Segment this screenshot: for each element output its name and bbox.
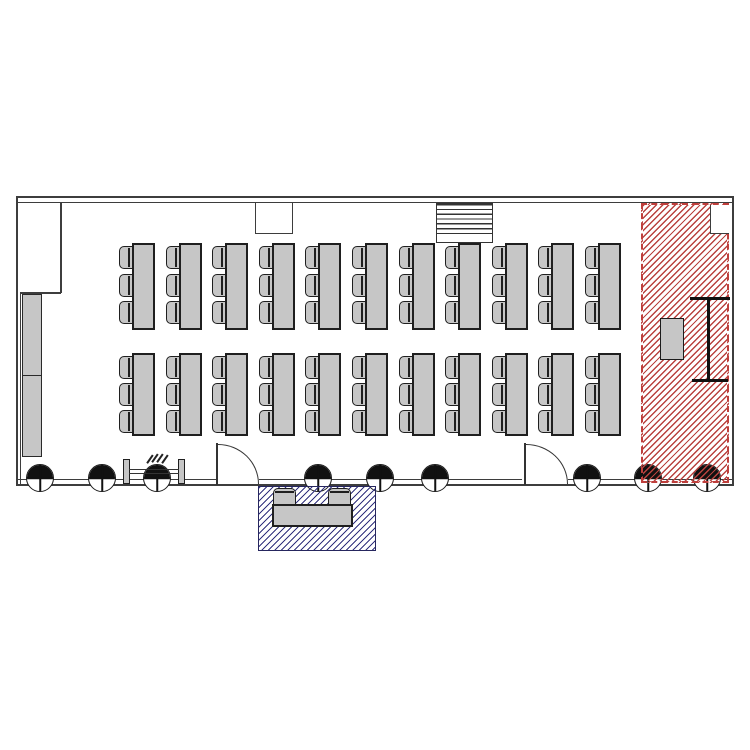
chair (352, 410, 366, 433)
red-area-cabinet (660, 318, 684, 360)
wall-recess (255, 203, 293, 234)
chair-backrest-line (361, 303, 363, 322)
chair-backrest-line (361, 385, 363, 404)
chair (585, 410, 599, 433)
column-axis-horizontal (27, 477, 53, 479)
chair-backrest-line (128, 412, 130, 431)
chair-backrest-line (454, 358, 456, 377)
chair (166, 383, 180, 406)
dining-table (598, 353, 621, 436)
chair (166, 410, 180, 433)
chair (212, 274, 226, 297)
wall-segment (16, 202, 733, 203)
chair-backrest-line (128, 385, 130, 404)
chair (305, 410, 319, 433)
structural-column (421, 464, 449, 492)
dining-table (132, 353, 155, 436)
dining-table (598, 243, 621, 330)
partition-line (707, 297, 710, 381)
dining-table (179, 243, 202, 330)
chair (166, 274, 180, 297)
chair-backrest-line (547, 303, 549, 322)
chair (305, 301, 319, 324)
chair-backrest-line (268, 385, 270, 404)
chair-backrest-line (128, 358, 130, 377)
chair-backrest-line (128, 248, 130, 267)
column-axis-horizontal (367, 477, 393, 479)
chair (352, 246, 366, 269)
chair (259, 383, 273, 406)
chair (492, 410, 506, 433)
chair-backrest-line (454, 412, 456, 431)
floor-plan-canvas (0, 0, 750, 750)
chair-backrest-line (501, 248, 503, 267)
red-area-notch (710, 205, 729, 234)
chair (445, 301, 459, 324)
chair-backrest-line (275, 491, 294, 493)
dining-table (318, 353, 341, 436)
chair-backrest-line (268, 276, 270, 295)
chair-backrest-line (547, 412, 549, 431)
chair (212, 246, 226, 269)
chair-backrest-line (221, 303, 223, 322)
chair (259, 301, 273, 324)
chair (538, 410, 552, 433)
chair (119, 274, 133, 297)
chair (585, 383, 599, 406)
chair (212, 410, 226, 433)
chair (399, 383, 413, 406)
chair (352, 383, 366, 406)
chair (585, 274, 599, 297)
chair (445, 356, 459, 379)
chair-backrest-line (314, 303, 316, 322)
entrance-bench (272, 504, 353, 527)
dining-table (505, 243, 528, 330)
chair-backrest-line (268, 412, 270, 431)
rail-line (129, 469, 179, 470)
chair-backrest-line (594, 303, 596, 322)
chair-backrest-line (221, 385, 223, 404)
dining-table (272, 353, 295, 436)
dining-table (225, 243, 248, 330)
chair (259, 410, 273, 433)
chair-backrest-line (361, 248, 363, 267)
chair-backrest-line (268, 248, 270, 267)
chair (305, 383, 319, 406)
dining-table (365, 353, 388, 436)
chair (212, 356, 226, 379)
chair (445, 274, 459, 297)
dining-table (365, 243, 388, 330)
chair (399, 274, 413, 297)
chair (259, 274, 273, 297)
chair-backrest-line (175, 248, 177, 267)
chair (492, 274, 506, 297)
wall-segment (60, 202, 62, 293)
chair-backrest-line (314, 248, 316, 267)
chair-backrest-line (128, 303, 130, 322)
dining-table (505, 353, 528, 436)
column-axis-horizontal (422, 477, 448, 479)
chair-backrest-line (221, 358, 223, 377)
dining-table (179, 353, 202, 436)
rail-line (129, 473, 179, 474)
chair (585, 356, 599, 379)
dining-table (458, 353, 481, 436)
chair (445, 246, 459, 269)
chair (212, 301, 226, 324)
chair (399, 246, 413, 269)
chair-backrest-line (501, 303, 503, 322)
chair (352, 301, 366, 324)
chair-backrest-line (268, 358, 270, 377)
chair (119, 246, 133, 269)
chair-backrest-line (547, 276, 549, 295)
chair (305, 246, 319, 269)
dining-table (551, 353, 574, 436)
chair (399, 356, 413, 379)
chair-backrest-line (268, 303, 270, 322)
chair (352, 274, 366, 297)
chair-backrest-line (547, 385, 549, 404)
entrance-chair (328, 488, 351, 505)
chair-backrest-line (594, 248, 596, 267)
column-axis-horizontal (144, 477, 170, 479)
chair-backrest-line (501, 385, 503, 404)
dining-table (318, 243, 341, 330)
chair (166, 246, 180, 269)
chair-backrest-line (547, 248, 549, 267)
chair-backrest-line (314, 385, 316, 404)
chair (119, 383, 133, 406)
structural-column (573, 464, 601, 492)
chair-backrest-line (501, 412, 503, 431)
entrance-area-blue (258, 486, 376, 551)
chair (445, 410, 459, 433)
chair (538, 356, 552, 379)
chair-backrest-line (501, 358, 503, 377)
chair (119, 301, 133, 324)
dining-table (551, 243, 574, 330)
column-axis-horizontal (574, 477, 600, 479)
stairs-treads (437, 204, 492, 237)
chair (585, 301, 599, 324)
chair (259, 246, 273, 269)
chair-backrest-line (408, 385, 410, 404)
chair (352, 356, 366, 379)
chair-backrest-line (175, 385, 177, 404)
entrance-chair (273, 488, 296, 505)
chair-backrest-line (361, 412, 363, 431)
structural-column (88, 464, 116, 492)
door-swing-arc (218, 444, 259, 484)
chair-backrest-line (175, 358, 177, 377)
chair (119, 410, 133, 433)
wall-segment (16, 196, 18, 486)
chair (399, 301, 413, 324)
dining-table (225, 353, 248, 436)
chair-backrest-line (594, 412, 596, 431)
chair-backrest-line (454, 276, 456, 295)
hatch-tick (161, 454, 168, 463)
chair (212, 383, 226, 406)
chair-backrest-line (314, 358, 316, 377)
chair-backrest-line (408, 248, 410, 267)
chair-backrest-line (594, 358, 596, 377)
chair (538, 383, 552, 406)
chair-backrest-line (330, 491, 349, 493)
wall-segment (732, 196, 734, 486)
chair (492, 301, 506, 324)
partition-line (692, 379, 728, 382)
chair-backrest-line (594, 385, 596, 404)
chair-backrest-line (501, 276, 503, 295)
chair (166, 356, 180, 379)
chair (492, 383, 506, 406)
floor-plan (0, 0, 750, 750)
chair-backrest-line (221, 248, 223, 267)
dining-table (458, 243, 481, 330)
rail-post (178, 459, 185, 484)
chair-backrest-line (221, 276, 223, 295)
stairs (436, 203, 493, 243)
column-axis-horizontal (89, 477, 115, 479)
chair-backrest-line (314, 276, 316, 295)
chair-backrest-line (175, 303, 177, 322)
wall-segment (20, 292, 21, 484)
chair-backrest-line (454, 385, 456, 404)
chair (305, 274, 319, 297)
chair-backrest-line (408, 276, 410, 295)
chair (305, 356, 319, 379)
chair-backrest-line (361, 358, 363, 377)
chair-backrest-line (361, 276, 363, 295)
column-axis-horizontal (305, 477, 331, 479)
chair-backrest-line (175, 276, 177, 295)
chair (445, 383, 459, 406)
wall-cabinet (22, 294, 42, 377)
chair-backrest-line (314, 412, 316, 431)
structural-column (26, 464, 54, 492)
chair (259, 356, 273, 379)
wall-segment (16, 196, 734, 198)
rail-post (123, 459, 130, 484)
chair (538, 274, 552, 297)
wall-cabinet (22, 375, 42, 457)
chair-backrest-line (454, 303, 456, 322)
chair (399, 410, 413, 433)
dining-table (412, 243, 435, 330)
chair-backrest-line (221, 412, 223, 431)
chair-backrest-line (175, 412, 177, 431)
chair (538, 301, 552, 324)
chair (492, 246, 506, 269)
chair-backrest-line (128, 276, 130, 295)
chair-backrest-line (408, 303, 410, 322)
chair-backrest-line (408, 412, 410, 431)
partition-line (690, 297, 730, 300)
chair-backrest-line (594, 276, 596, 295)
chair (166, 301, 180, 324)
dining-table (272, 243, 295, 330)
chair-backrest-line (454, 248, 456, 267)
dining-table (412, 353, 435, 436)
chair (585, 246, 599, 269)
dining-table (132, 243, 155, 330)
chair (119, 356, 133, 379)
highlighted-area-red (641, 203, 729, 483)
chair-backrest-line (547, 358, 549, 377)
chair (492, 356, 506, 379)
chair (538, 246, 552, 269)
door-swing-arc (526, 444, 568, 484)
chair-backrest-line (408, 358, 410, 377)
